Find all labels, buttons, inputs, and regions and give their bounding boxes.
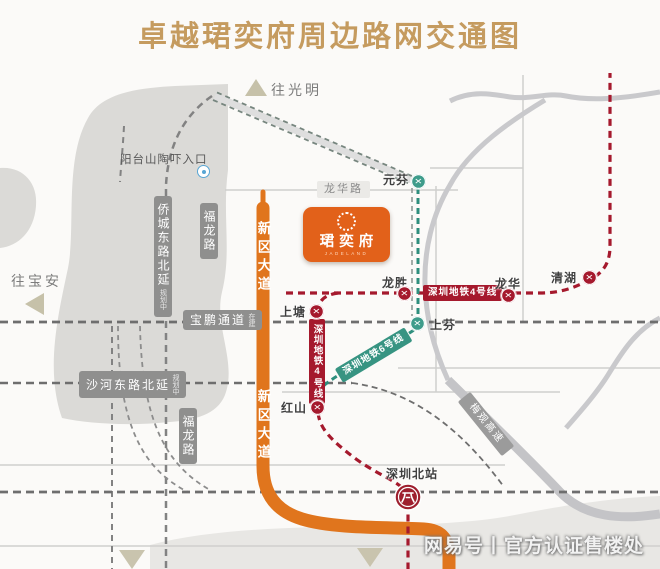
south-arrow-icon bbox=[119, 550, 145, 569]
watermark-text: 官方认证售楼处 bbox=[504, 536, 644, 557]
station-longsheng-icon bbox=[397, 286, 412, 301]
meiguan-expressway-road bbox=[448, 380, 660, 517]
xinqu-avenue-label-south: 新区大道 bbox=[256, 389, 270, 463]
metro-line4-label-vertical: 深圳地铁4号线 bbox=[309, 319, 325, 404]
terrain-left bbox=[0, 168, 36, 248]
station-shangtang-icon bbox=[309, 304, 324, 319]
direction-guangming: 往光明 bbox=[271, 80, 322, 100]
station-longhua-icon bbox=[501, 288, 516, 303]
station-yuanfen-icon bbox=[411, 174, 426, 189]
station-hongshan-label: 红山 bbox=[281, 399, 307, 416]
fulong-road-label-north: 福龙路 bbox=[200, 203, 218, 259]
traffic-map: 卓越珺奕府周边路网交通图 往光明 往宝安 阳台山陶吓入口 龙华路 福龙路 福龙路… bbox=[0, 0, 660, 569]
shahe-ext-label: 沙河东路北延规划中 bbox=[79, 371, 186, 398]
project-name: 珺奕府 bbox=[315, 234, 379, 251]
qiaocheng-ext-note: 规划中 bbox=[160, 289, 167, 310]
longhua-road-label: 龙华路 bbox=[317, 181, 370, 198]
light-roads bbox=[425, 92, 660, 517]
station-qinghu-label: 清湖 bbox=[551, 269, 577, 286]
station-shangfen-icon bbox=[410, 316, 425, 331]
project-latin-name: JADELAND bbox=[325, 251, 369, 257]
project-card: 珺奕府 JADELAND bbox=[303, 207, 390, 262]
page-title: 卓越珺奕府周边路网交通图 bbox=[0, 13, 660, 55]
south-arrow-icon-2 bbox=[357, 548, 383, 567]
station-yuanfen-label: 元芬 bbox=[383, 171, 409, 188]
project-emblem-icon bbox=[337, 212, 356, 231]
trailhead-icon bbox=[197, 165, 210, 178]
north-guangming-arrow-icon bbox=[245, 79, 267, 96]
station-shangtang-label: 上塘 bbox=[280, 303, 306, 320]
station-hongshan-icon bbox=[310, 400, 325, 415]
watermark-brand: 网易号 bbox=[424, 536, 484, 557]
west-baoan-arrow-icon bbox=[25, 293, 44, 315]
xinqu-avenue-label-north: 新区大道 bbox=[256, 221, 270, 295]
watermark: 网易号丨官方认证售楼处 bbox=[424, 531, 644, 558]
baopeng-channel-label: 宝鹏通道在建 bbox=[183, 310, 262, 330]
station-shangfen-label: 上芬 bbox=[430, 316, 456, 333]
metro-line4-label-horizontal: 深圳地铁4号线 bbox=[423, 285, 502, 301]
station-qinghu-icon bbox=[582, 270, 597, 285]
shahe-ext-note: 规划中 bbox=[172, 374, 179, 395]
yangtaishan-entrance-label: 阳台山陶吓入口 bbox=[120, 151, 208, 167]
shenzhen-north-rail-icon bbox=[394, 483, 422, 511]
direction-baoan: 往宝安 bbox=[11, 271, 62, 291]
fulong-road-label-south: 福龙路 bbox=[179, 408, 197, 464]
baopeng-note: 在建 bbox=[248, 313, 255, 327]
watermark-divider: 丨 bbox=[484, 536, 504, 557]
station-shenzhen-north-label: 深圳北站 bbox=[386, 465, 438, 482]
qiaocheng-ext-label: 侨城东路北延规划中 bbox=[154, 196, 172, 317]
